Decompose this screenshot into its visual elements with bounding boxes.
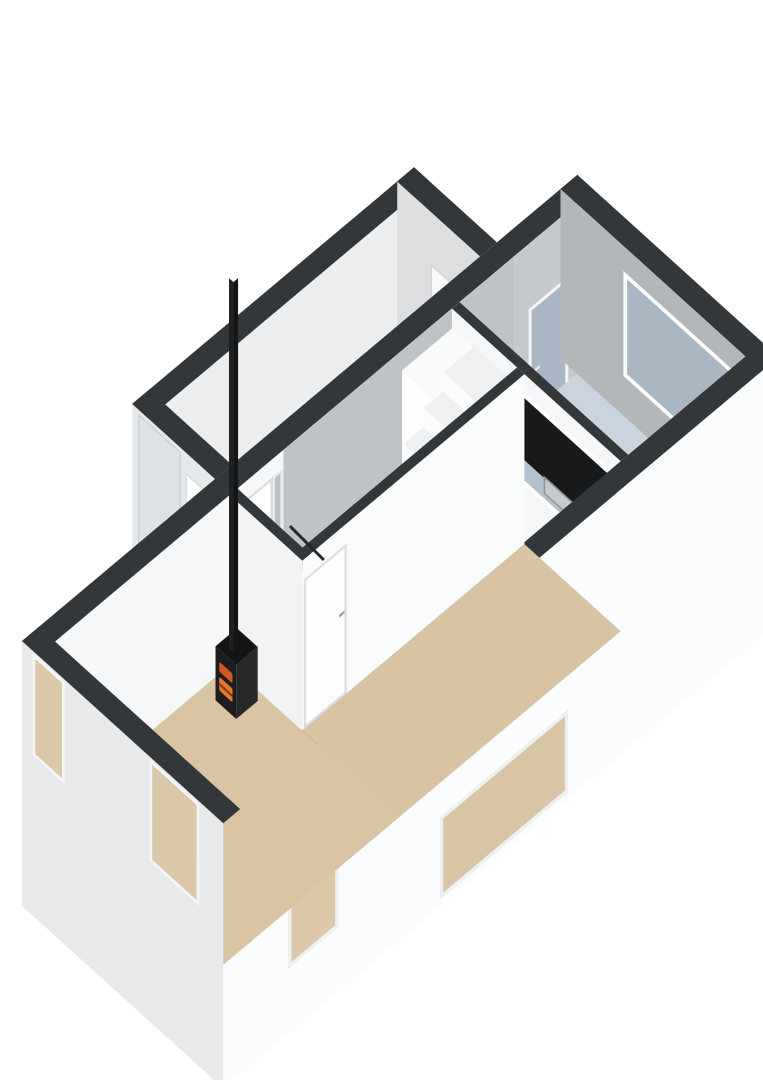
stove-chimney-side <box>233 278 238 653</box>
floorplan-3d-view <box>0 0 763 1080</box>
